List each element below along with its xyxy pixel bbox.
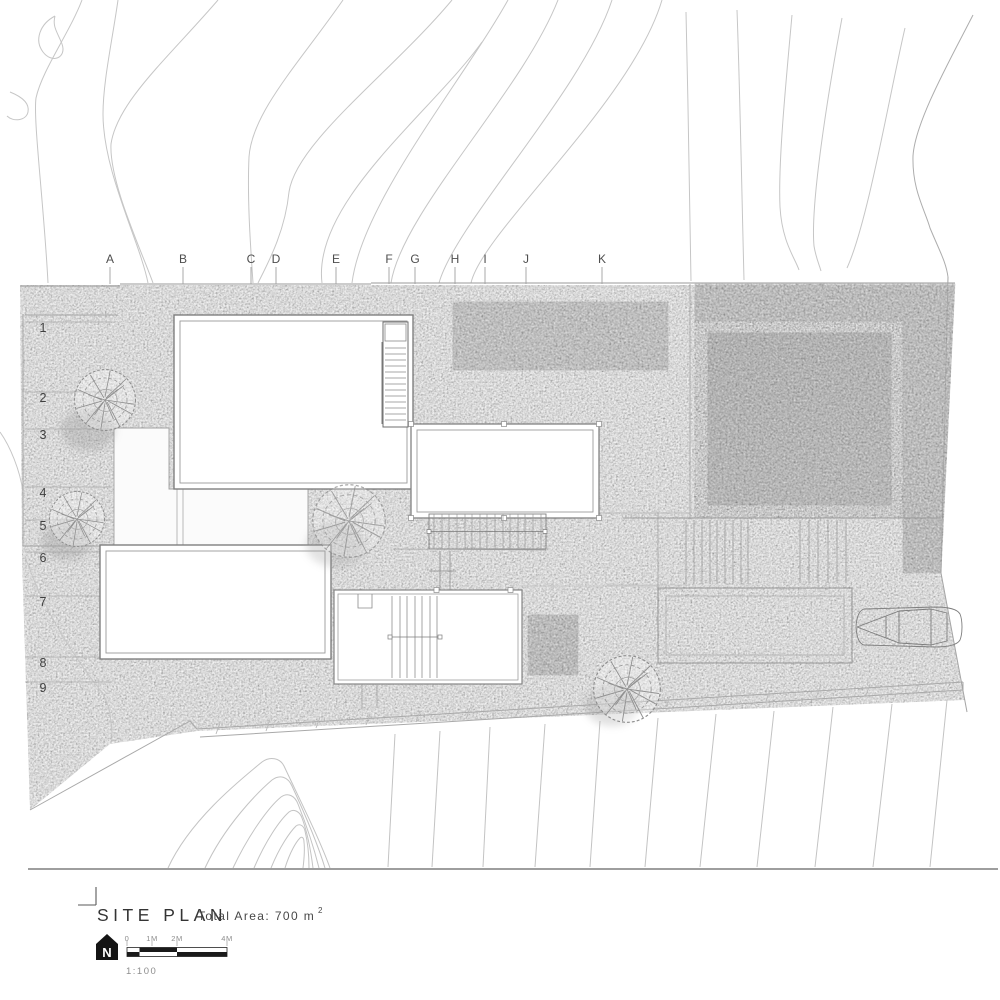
upper-terrace-slab bbox=[453, 302, 668, 370]
scale-bar-segment bbox=[177, 952, 227, 957]
grid-column-label: E bbox=[332, 252, 340, 266]
contour bbox=[873, 704, 892, 867]
building-upper bbox=[174, 315, 413, 489]
contour bbox=[737, 10, 744, 280]
total-area-superscript: 2 bbox=[318, 906, 323, 915]
grid-row-label: 4 bbox=[40, 486, 47, 500]
contour bbox=[930, 700, 947, 867]
grid-column-label: H bbox=[451, 252, 460, 266]
terrace-slab bbox=[453, 302, 668, 370]
north-arrow-icon: N bbox=[96, 934, 118, 960]
column-marker bbox=[502, 516, 507, 521]
grid-column-label: I bbox=[483, 252, 486, 266]
contour bbox=[388, 734, 395, 867]
contour bbox=[39, 16, 63, 58]
contour bbox=[285, 837, 304, 868]
grid-column-ticks bbox=[110, 267, 602, 284]
contour bbox=[535, 724, 545, 867]
contour bbox=[757, 711, 774, 867]
tree bbox=[313, 485, 386, 558]
grid-column-label: K bbox=[598, 252, 606, 266]
scale-bar-ticks bbox=[127, 941, 227, 946]
contour bbox=[0, 432, 23, 492]
contour bbox=[686, 12, 691, 281]
column-marker bbox=[597, 516, 602, 521]
contour bbox=[35, 0, 82, 283]
contour bbox=[205, 777, 325, 868]
scale-bar-segment bbox=[127, 952, 140, 957]
property-boundary-right-upper bbox=[913, 15, 973, 277]
small-patio bbox=[528, 615, 578, 675]
grid-row-label: 2 bbox=[40, 391, 47, 405]
column-marker bbox=[597, 422, 602, 427]
contour bbox=[813, 18, 842, 271]
contour bbox=[103, 0, 148, 283]
grid-row-label: 1 bbox=[40, 321, 47, 335]
rail-end-marker bbox=[427, 530, 431, 534]
contour bbox=[483, 727, 490, 867]
contour bbox=[780, 15, 799, 270]
building-lower-left bbox=[100, 545, 331, 659]
scale-ratio-label: 1:100 bbox=[126, 966, 157, 977]
contour bbox=[700, 714, 716, 867]
column-marker bbox=[409, 422, 414, 427]
middle-building-inner-wall bbox=[417, 430, 593, 512]
scale-bar: 0 1M 2M 4M 1:100 bbox=[125, 934, 233, 977]
grid-column-label: B bbox=[179, 252, 187, 266]
rail-end-marker bbox=[543, 530, 547, 534]
column-marker bbox=[409, 516, 414, 521]
contour bbox=[258, 0, 452, 283]
grid-row-label: 8 bbox=[40, 656, 47, 670]
contour bbox=[471, 0, 662, 283]
tree bbox=[49, 491, 104, 546]
grid-column-label: F bbox=[385, 252, 392, 266]
site-plan-drawing: A B C D E F G H I J K 1 2 3 4 5 6 7 8 9 bbox=[0, 0, 1000, 1000]
contour bbox=[432, 731, 440, 867]
contour bbox=[111, 0, 218, 283]
grid-row-label: 9 bbox=[40, 681, 47, 695]
contour bbox=[815, 707, 833, 867]
grid-column-label: C bbox=[247, 252, 256, 266]
contour bbox=[645, 718, 658, 867]
grid-column-label: A bbox=[106, 252, 114, 266]
tree bbox=[594, 656, 661, 723]
upper-building-inner-wall bbox=[180, 321, 407, 483]
grid-row-label: 3 bbox=[40, 428, 47, 442]
column-marker bbox=[502, 422, 507, 427]
pool bbox=[708, 333, 891, 505]
grid-column-label: J bbox=[523, 252, 529, 266]
contour bbox=[168, 759, 330, 868]
grid-column-label: D bbox=[272, 252, 281, 266]
total-area-label: Total Area: 700 m bbox=[198, 909, 315, 923]
column-marker bbox=[434, 588, 439, 593]
contour bbox=[590, 721, 600, 867]
scale-bar-segment bbox=[140, 948, 178, 953]
lower-building-inner-wall bbox=[106, 551, 325, 653]
title-block: SITE PLAN Total Area: 700 m 2 N 0 1M 2M … bbox=[78, 887, 323, 977]
north-label: N bbox=[102, 945, 111, 960]
contour bbox=[352, 0, 508, 283]
contour bbox=[847, 28, 905, 268]
contour bbox=[7, 92, 28, 120]
stair-landing bbox=[385, 324, 406, 341]
rail-end-marker bbox=[388, 635, 392, 639]
grid-column-label: G bbox=[410, 252, 419, 266]
tree bbox=[75, 370, 136, 431]
site-plan-page: A B C D E F G H I J K 1 2 3 4 5 6 7 8 9 bbox=[0, 0, 1000, 1000]
rail-end-marker bbox=[438, 635, 442, 639]
stair-upper-building bbox=[382, 322, 408, 427]
corner-mark-icon bbox=[78, 887, 96, 905]
contour bbox=[439, 0, 612, 283]
grid-row-label: 7 bbox=[40, 595, 47, 609]
column-marker bbox=[508, 588, 513, 593]
contour bbox=[248, 0, 343, 283]
contour bbox=[391, 0, 558, 283]
grid-row-label: 6 bbox=[40, 551, 47, 565]
